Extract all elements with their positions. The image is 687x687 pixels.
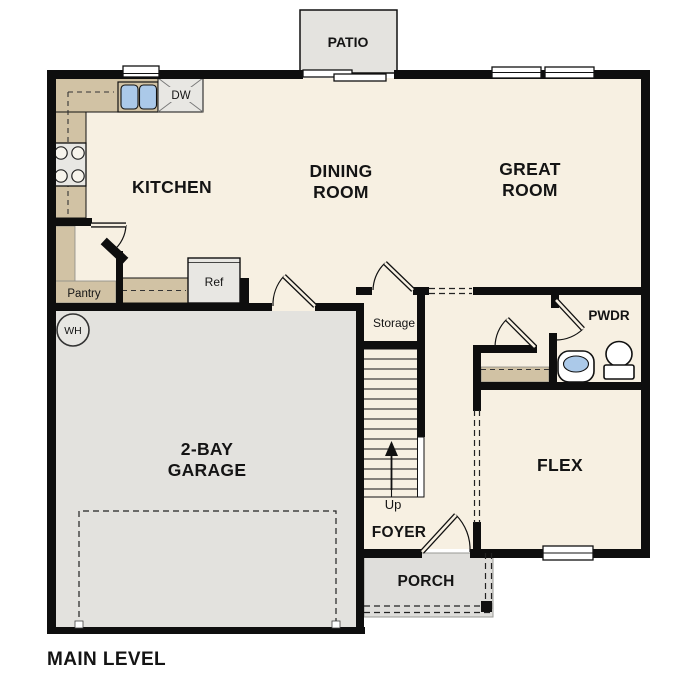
room-label-dining-line2: ROOM — [313, 182, 369, 202]
room-label-great-line2: ROOM — [502, 180, 558, 200]
coat-closet-shelf — [481, 367, 549, 382]
room-label-kitchen: KITCHEN — [132, 177, 212, 197]
kitchen-window — [123, 66, 159, 77]
room-label-patio: PATIO — [328, 34, 369, 50]
great-room-window-1 — [492, 67, 541, 78]
stove-icon — [52, 143, 86, 186]
room-label-garage-line2: GARAGE — [168, 460, 247, 480]
feature-label-up: Up — [385, 497, 402, 512]
toilet-icon — [604, 342, 634, 380]
kitchen-sink-icon — [118, 82, 158, 112]
feature-label-storage: Storage — [373, 316, 415, 330]
flex-window — [543, 546, 593, 560]
room-label-powder: PWDR — [588, 308, 629, 323]
page-title: MAIN LEVEL — [47, 649, 166, 670]
powder-sink-icon — [558, 351, 594, 382]
feature-label-refrigerator: Ref — [205, 275, 224, 289]
stair-railing — [418, 437, 425, 497]
feature-label-dishwasher: DW — [171, 90, 190, 102]
feature-label-water-heater: WH — [64, 325, 82, 337]
room-label-great-line1: GREAT — [499, 159, 560, 179]
floor-plan: PATIO KITCHEN DINING ROOM GREAT ROOM 2-B… — [0, 0, 687, 687]
room-label-porch: PORCH — [398, 573, 455, 590]
great-room-window-2 — [545, 67, 594, 78]
room-label-flex: FLEX — [537, 455, 583, 475]
room-label-foyer: FOYER — [372, 524, 426, 541]
room-label-dining-line1: DINING — [309, 161, 372, 181]
feature-label-pantry: Pantry — [67, 288, 100, 300]
room-label-garage-line1: 2-BAY — [181, 439, 233, 459]
porch-post — [481, 601, 492, 612]
